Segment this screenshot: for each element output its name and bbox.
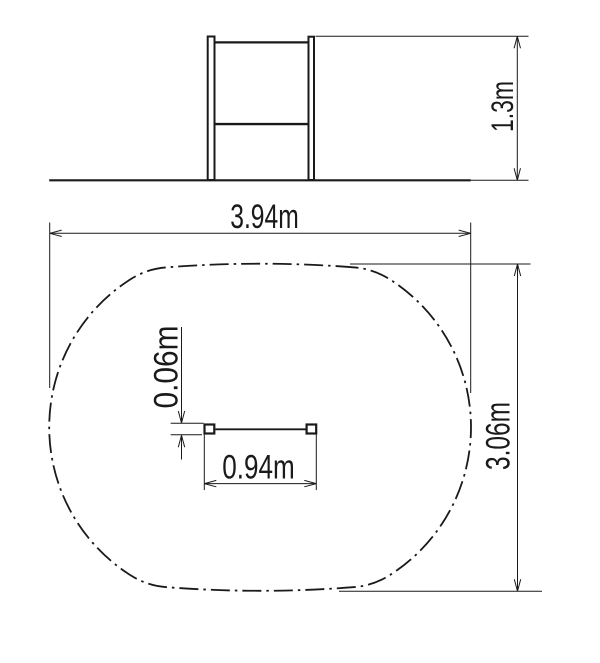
svg-text:0.06m: 0.06m [148, 326, 186, 409]
svg-text:1.3m: 1.3m [484, 81, 520, 132]
svg-text:3.94m: 3.94m [230, 198, 299, 236]
svg-text:3.06m: 3.06m [480, 402, 518, 470]
svg-text:0.94m: 0.94m [222, 449, 295, 487]
